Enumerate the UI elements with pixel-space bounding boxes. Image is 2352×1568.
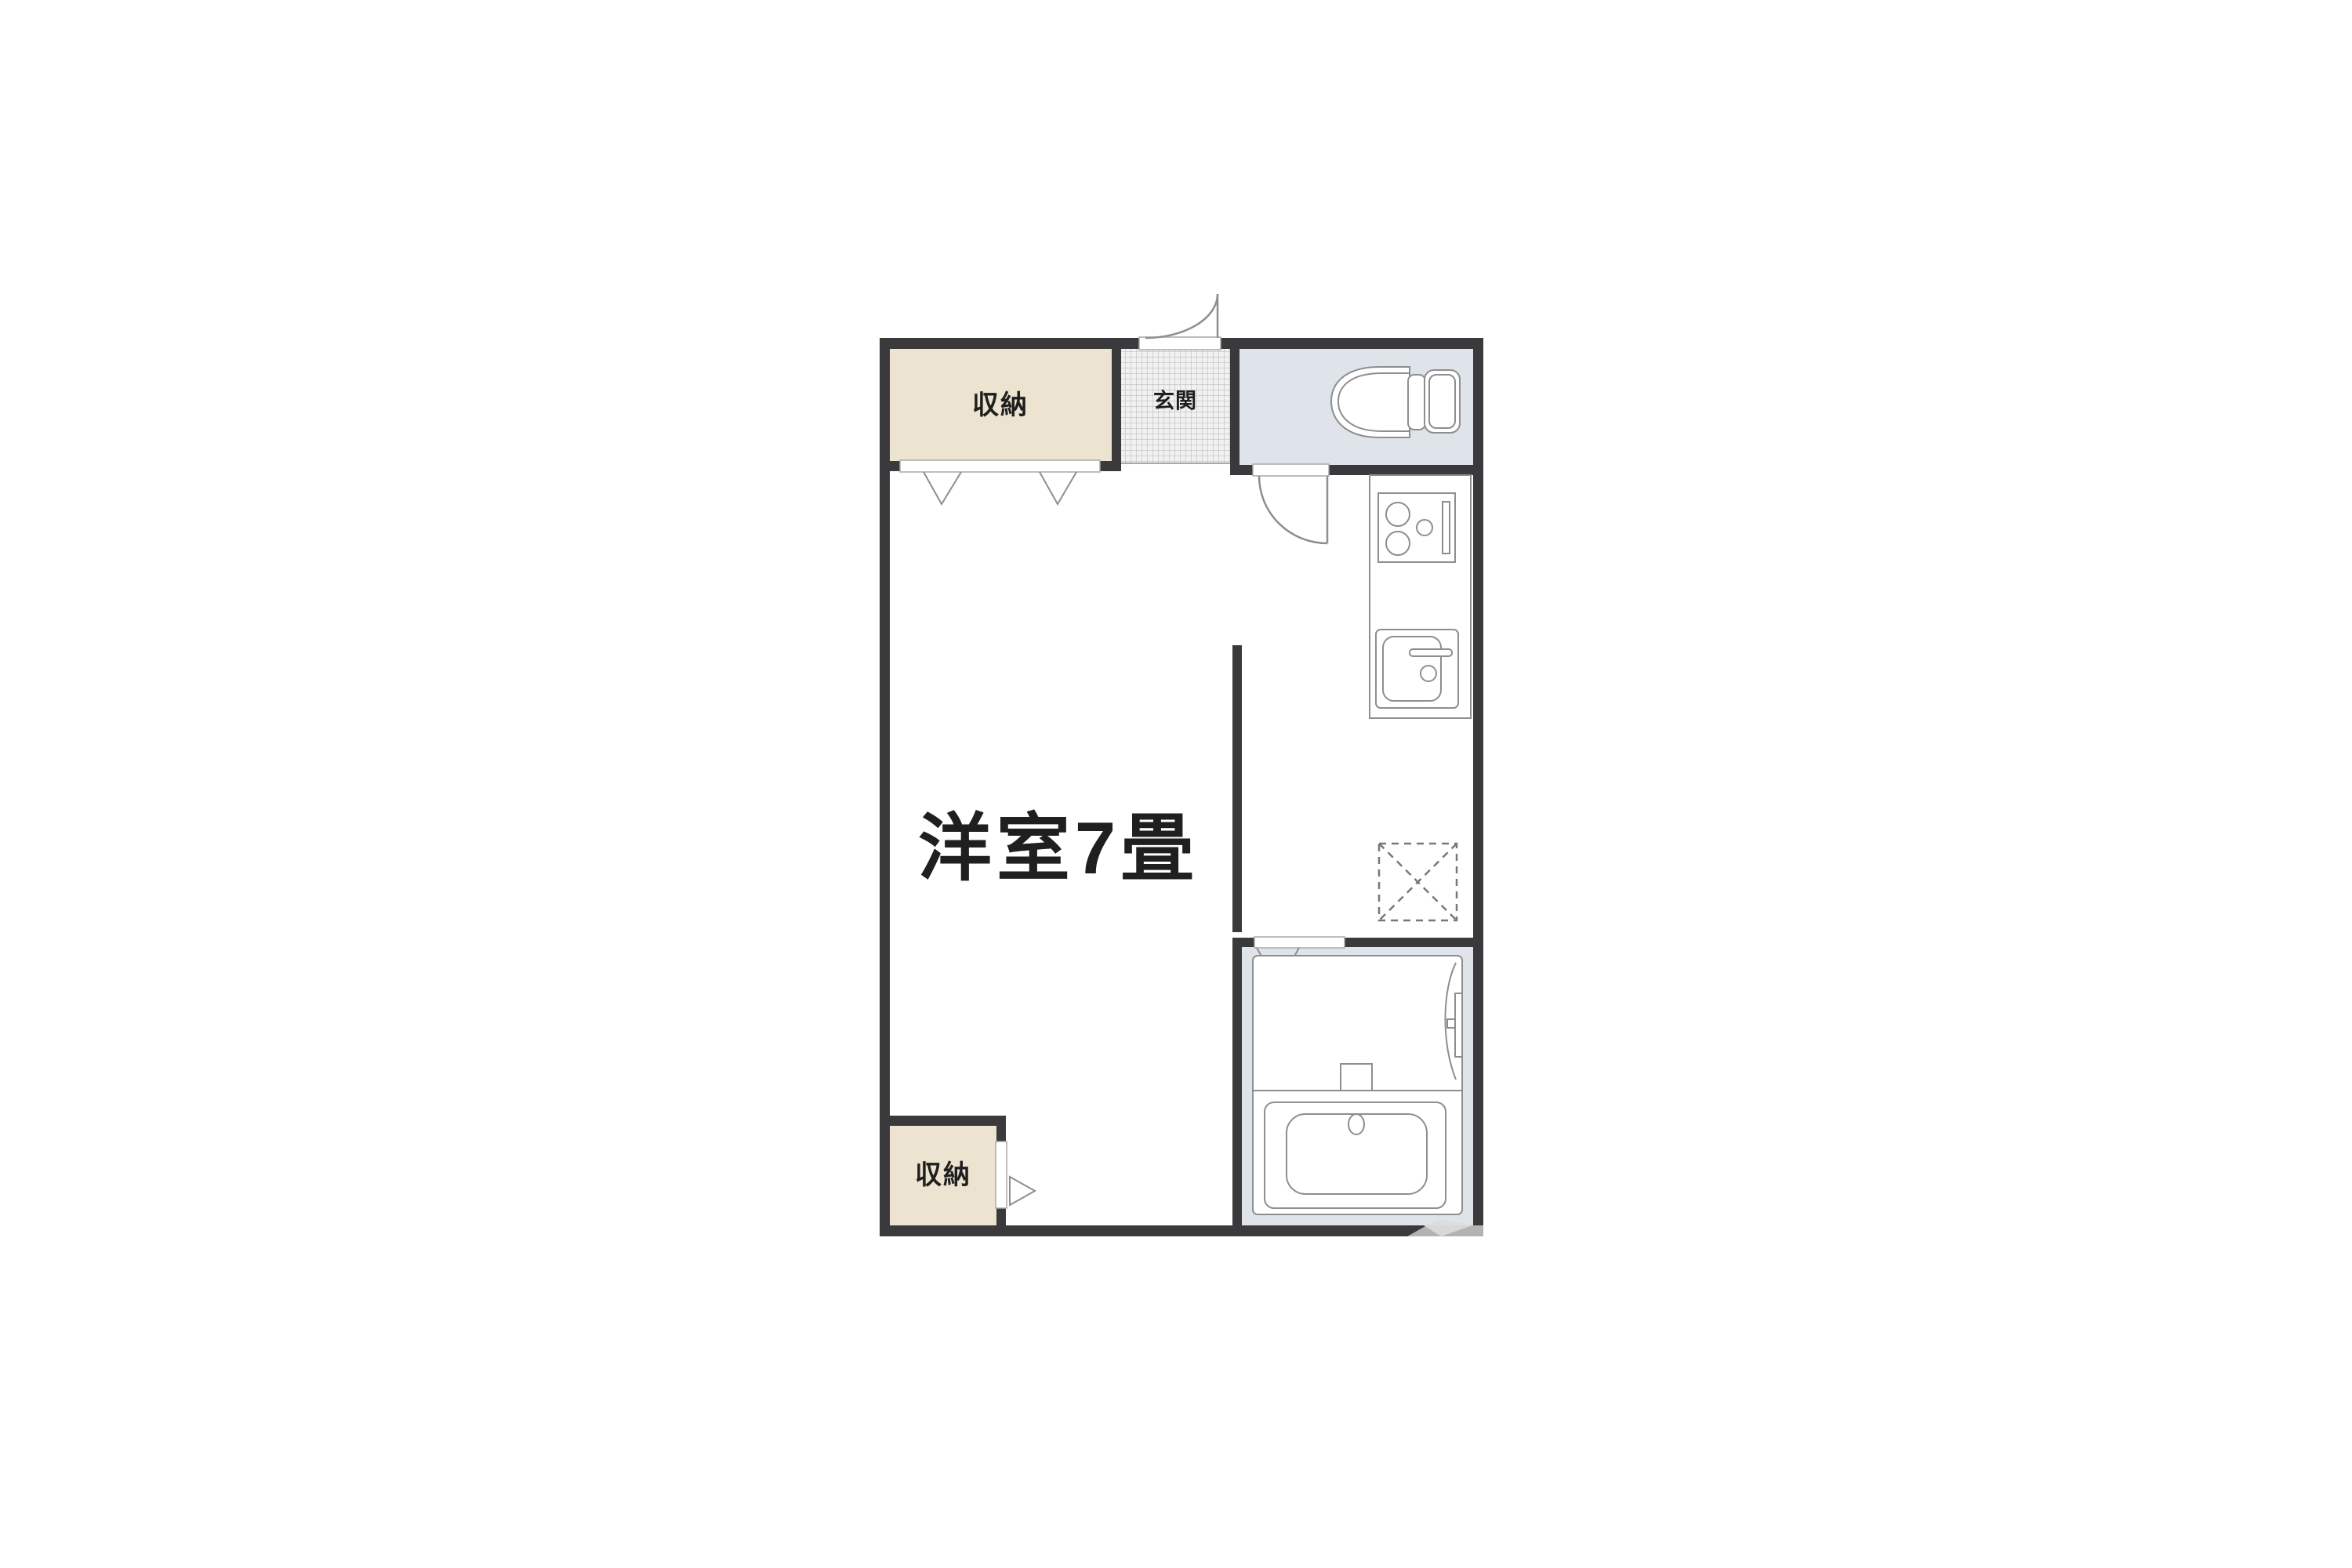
room-label-main-room: 洋室7畳	[918, 811, 1199, 885]
entrance-door-swing	[1145, 294, 1218, 338]
room-label-storage-bottom: 収納	[915, 1162, 971, 1189]
bathroom-unit	[1253, 956, 1462, 1214]
kitchen-counter	[1370, 475, 1471, 718]
floor-plan: 収納 玄関 洋室7畳 収納	[0, 0, 2352, 1568]
bathtub-icon	[1265, 1102, 1446, 1208]
closet-bottom-opening	[996, 1142, 1007, 1208]
room-label-entrance: 玄関	[1153, 391, 1197, 412]
entrance-door-opening	[1139, 337, 1221, 350]
stove-icon	[1378, 493, 1455, 562]
wall-storage-top-right	[1112, 338, 1121, 471]
wall-partition	[1232, 645, 1242, 932]
toilet-door-opening	[1253, 464, 1329, 476]
wall-bottom	[880, 1225, 1483, 1236]
kitchen-sink-icon	[1376, 630, 1458, 708]
wall-entrance-toilet-divider	[1230, 338, 1240, 475]
wall-bathroom-left	[1232, 938, 1242, 1236]
closet-top-opening	[900, 460, 1100, 472]
toilet-icon	[1331, 367, 1460, 437]
bathroom-door-opening	[1254, 937, 1345, 948]
wall-left	[880, 338, 890, 1236]
wall-storage-bottom-top	[880, 1116, 1006, 1126]
floor-plan-drawing	[0, 0, 2352, 1568]
room-label-storage-top: 収納	[972, 392, 1029, 419]
bath-faucet-block	[1341, 1064, 1372, 1091]
